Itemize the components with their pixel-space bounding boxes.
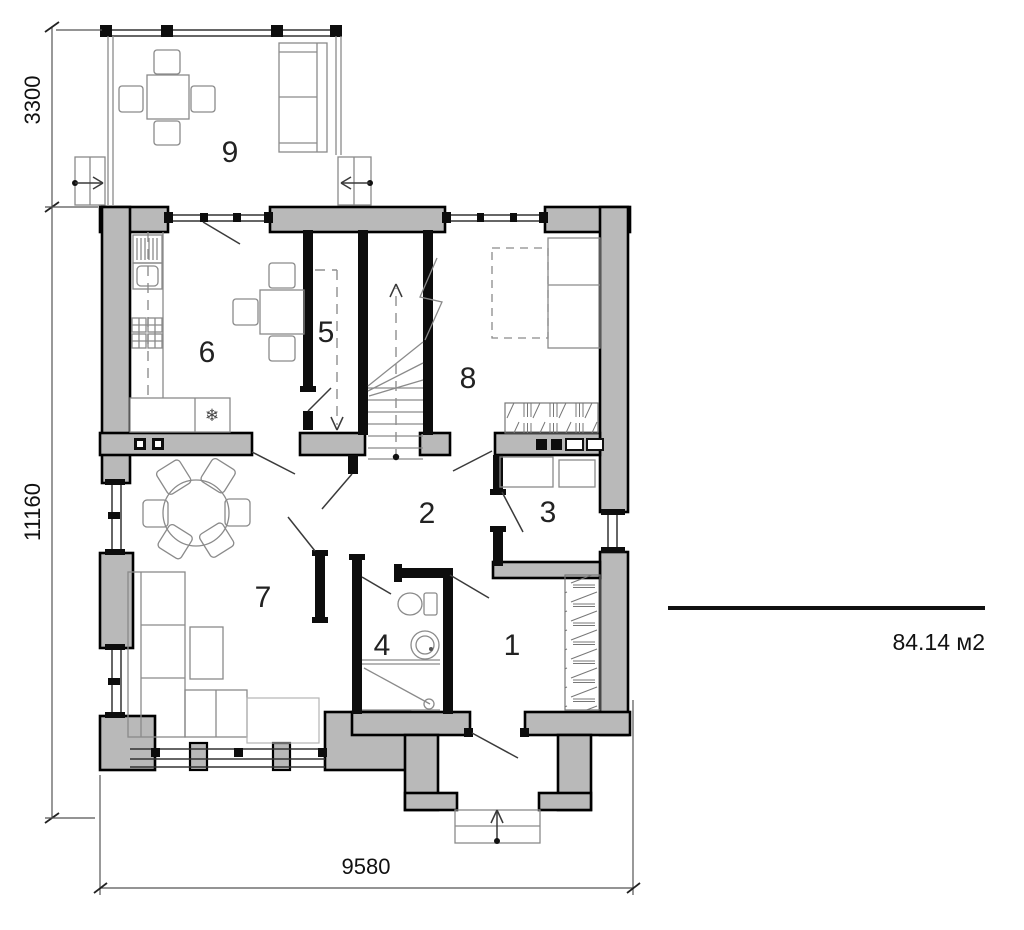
- kitchen-door-swing: [252, 452, 295, 474]
- porch-pier-left-foot: [405, 793, 457, 810]
- stairs-door-swing: [322, 474, 352, 509]
- terrace-steps-left: [72, 157, 105, 205]
- bedroom-furniture: [492, 238, 603, 450]
- toilet: [398, 593, 437, 615]
- terrace-sofa: [279, 43, 327, 152]
- living-room-furniture: [128, 457, 319, 743]
- room-label-2: 2: [419, 497, 436, 530]
- terrace-post: [330, 25, 342, 37]
- room-label-5: 5: [318, 316, 335, 349]
- dim-11160-value: 11160: [20, 483, 45, 541]
- hall-route-arrow: [315, 270, 343, 430]
- window-pillar: [190, 743, 207, 770]
- room-label-6: 6: [199, 336, 216, 369]
- shower: [362, 660, 440, 710]
- interior-walls: [100, 230, 600, 714]
- dim-3300-value: 3300: [20, 76, 45, 125]
- washbasin: [411, 631, 439, 659]
- room1-door-swing: [450, 575, 489, 598]
- terrace-post: [271, 25, 283, 37]
- door-stub: [348, 455, 358, 474]
- dim-9580-value: 9580: [342, 854, 391, 879]
- kitchen-fixtures: ❄: [130, 232, 304, 450]
- room3-furniture: [500, 457, 595, 487]
- area-label: 84.14 м2: [668, 608, 985, 655]
- terrace-door-swing: [203, 222, 240, 244]
- porch-pier-right-foot: [539, 793, 591, 810]
- door-stub: [303, 411, 313, 430]
- entry-steps: [455, 810, 540, 844]
- terrace-post: [100, 25, 112, 37]
- lower-counter-freezer: ❄: [130, 398, 230, 432]
- room-label-7: 7: [255, 581, 272, 614]
- room-label-3: 3: [540, 496, 557, 529]
- desk-chair: [559, 460, 595, 487]
- stove: [132, 318, 162, 348]
- front-door-swing: [472, 733, 518, 758]
- freezer-icon: ❄: [205, 406, 219, 425]
- kitchen-table: [233, 263, 304, 361]
- room-label-4: 4: [374, 629, 391, 662]
- room-label-1: 1: [504, 629, 521, 662]
- terrace: [72, 25, 373, 205]
- wardrobe-hall: [565, 575, 600, 710]
- bed-dashed-extension: [492, 248, 548, 338]
- wardrobe-bedroom: [505, 403, 598, 433]
- dining-table-round: [143, 457, 250, 560]
- dimension-total-depth: 11160: [20, 202, 98, 823]
- floor-plan-drawing: ❄: [0, 0, 1024, 930]
- room-label-9: 9: [222, 136, 239, 169]
- room-label-8: 8: [460, 362, 477, 395]
- floor-plan-page: ❄: [0, 0, 1024, 930]
- coffee-table: [190, 627, 223, 679]
- terrace-post: [161, 25, 173, 37]
- bedroom-door-swing: [453, 451, 492, 471]
- bed: [548, 238, 600, 348]
- area-value: 84.14 м2: [892, 629, 985, 655]
- dresser-band: [536, 439, 603, 450]
- window-pillar: [273, 743, 290, 770]
- bath-door-swing: [362, 577, 391, 594]
- terrace-steps-right: [338, 157, 373, 205]
- living-door-swing: [288, 517, 315, 551]
- terrace-table: [119, 50, 215, 145]
- desk: [500, 457, 553, 487]
